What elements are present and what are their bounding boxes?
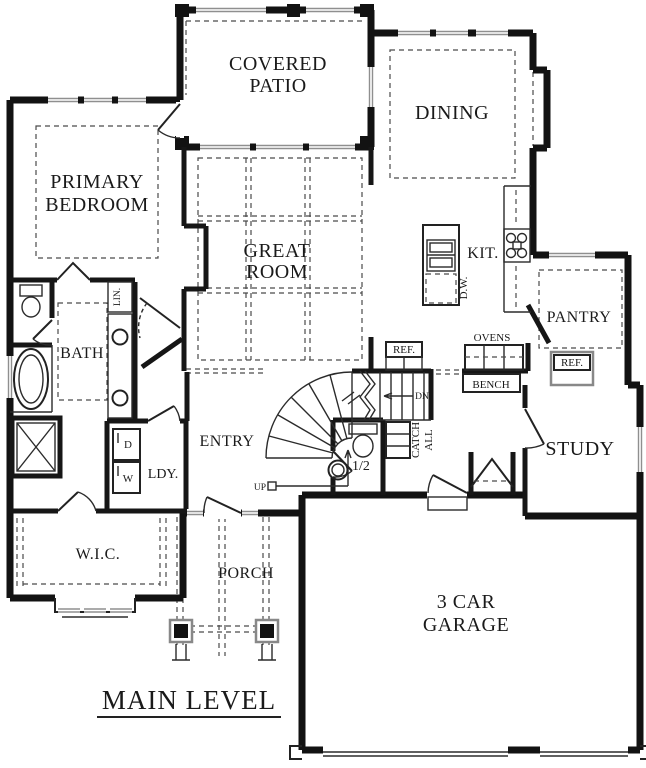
catch-all-lockers xyxy=(386,422,410,458)
room-label-dining: DINING xyxy=(415,102,489,124)
garage-doors xyxy=(323,752,628,756)
floor-plan-svg: COVERED PATIO DINING PRIMARY BEDROOM GRE… xyxy=(0,0,646,768)
room-label-laundry: LDY. xyxy=(148,467,178,482)
room-label-garage-2: GARAGE xyxy=(423,614,509,636)
kitchen-island xyxy=(423,225,459,305)
room-label-covered-patio-2: PATIO xyxy=(249,75,306,97)
callout-ref-pantry: REF. xyxy=(561,357,583,369)
room-label-great-1: GREAT xyxy=(244,240,311,262)
callout-linen: LIN. xyxy=(113,288,123,306)
callout-down: DN xyxy=(415,392,429,402)
callout-washer: W xyxy=(123,473,134,485)
shower-icon xyxy=(12,418,60,476)
porch-column-icon xyxy=(256,620,278,642)
doors xyxy=(33,102,544,519)
room-label-bath: BATH xyxy=(60,345,104,362)
callout-dishwasher: D.W. xyxy=(458,276,470,299)
room-label-porch: PORCH xyxy=(218,565,274,582)
room-label-wic: W.I.C. xyxy=(76,546,121,563)
room-label-great-2: ROOM xyxy=(246,261,308,283)
porch-column-icon xyxy=(170,620,192,642)
room-label-kitchen: KIT. xyxy=(467,245,498,262)
plan-title: MAIN LEVEL xyxy=(102,685,276,715)
labels: COVERED PATIO DINING PRIMARY BEDROOM GRE… xyxy=(45,53,614,717)
callout-catch-all-2: ALL xyxy=(423,429,435,451)
callout-ovens: OVENS xyxy=(474,332,511,344)
porch-structure xyxy=(170,620,278,660)
room-label-study: STUDY xyxy=(545,438,614,460)
callout-up: UP xyxy=(254,483,266,493)
room-label-garage-1: 3 CAR xyxy=(437,591,496,613)
bathtub-icon xyxy=(10,345,52,412)
room-label-primary-1: PRIMARY xyxy=(50,171,144,193)
room-label-half-bath: 1/2 xyxy=(352,459,370,474)
callout-bench: BENCH xyxy=(472,379,509,391)
room-label-covered-patio-1: COVERED xyxy=(229,53,327,75)
room-label-entry: ENTRY xyxy=(200,433,255,450)
floor-plan: COVERED PATIO DINING PRIMARY BEDROOM GRE… xyxy=(0,0,646,768)
cooktop-icon xyxy=(504,229,530,262)
room-label-primary-2: BEDROOM xyxy=(45,194,149,216)
sink-icon xyxy=(113,330,128,406)
half-bath-sink-icon xyxy=(329,461,348,480)
callout-catch-all-1: CATCH xyxy=(410,422,422,458)
ovens-cabinet-icon xyxy=(465,345,523,370)
callout-ref-kitchen: REF. xyxy=(393,344,415,356)
toilet-icon xyxy=(20,285,42,317)
half-bath-toilet-icon xyxy=(349,424,377,457)
room-label-pantry: PANTRY xyxy=(547,309,612,326)
callout-dryer: D xyxy=(124,439,132,451)
